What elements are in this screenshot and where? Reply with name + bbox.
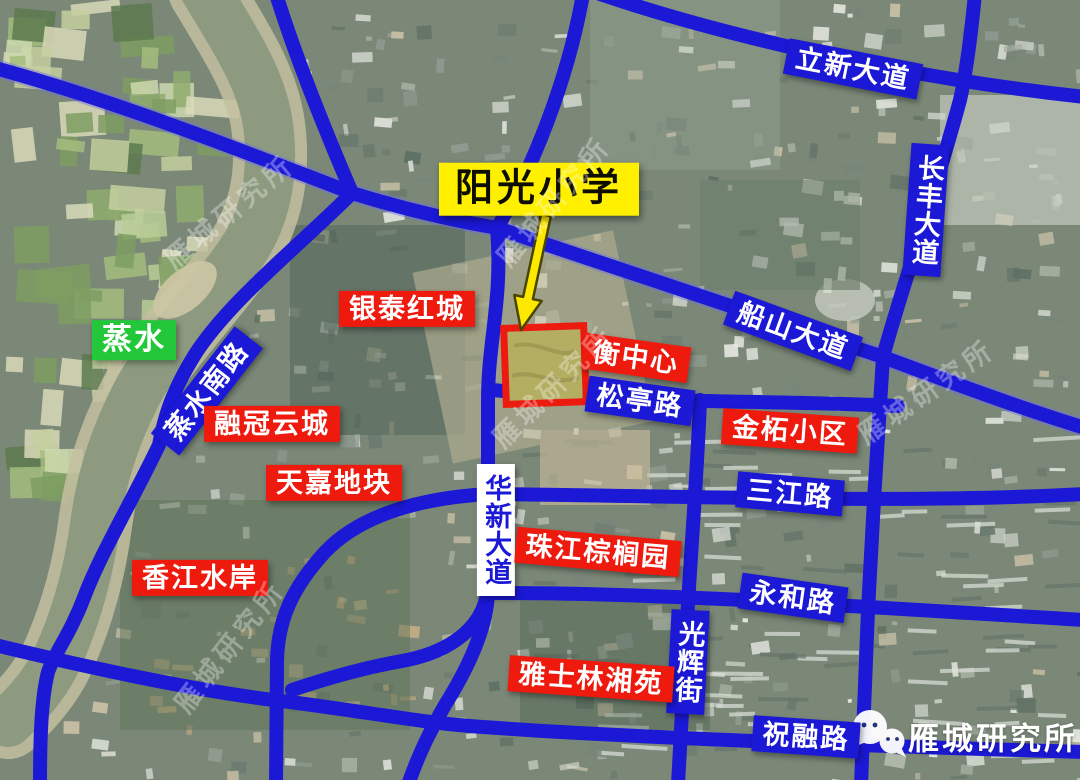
river-label-zhengshui: 蒸水 bbox=[92, 320, 176, 360]
brand-watermark: 雁城研究所 bbox=[908, 714, 1078, 759]
poi-label-yintai-hongcheng: 银泰红城 bbox=[339, 291, 475, 327]
poi-label-rongguan-yuncheng: 融冠云城 bbox=[204, 406, 340, 442]
poi-label-yangguang-primary-school: 阳光小学 bbox=[439, 163, 639, 216]
road-label-zhurong-road: 祝融路 bbox=[751, 715, 860, 759]
target-parcel bbox=[504, 326, 587, 405]
poi-label-xiangjiang-waterfront: 香江水岸 bbox=[132, 560, 268, 596]
road-label-huaxin-avenue: 华新大道 bbox=[477, 464, 515, 596]
road-label-guanghui-street: 光辉街 bbox=[666, 609, 710, 715]
satellite-map-image: 阳光小学 立新大道 长丰大道 船山大道 蒸水 蒸水南路 银泰红城 融冠云城 天嘉… bbox=[0, 0, 1080, 780]
poi-label-tianjia-parcel: 天嘉地块 bbox=[266, 465, 402, 501]
